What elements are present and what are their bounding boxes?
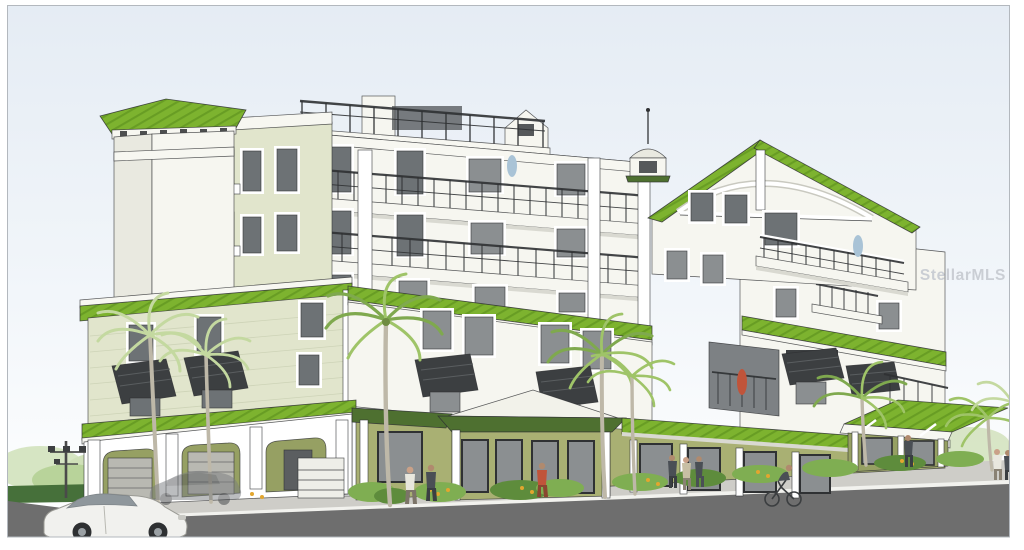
balcony-figure (853, 235, 863, 257)
recessed-balcony (709, 342, 779, 416)
balcony-column (588, 158, 600, 320)
elevator-tower (100, 99, 246, 318)
rendering-canvas: StellarMLS (0, 0, 1024, 550)
corner-pilaster (638, 162, 650, 334)
balcony-figure (737, 369, 747, 395)
balcony-figure (507, 155, 517, 177)
architectural-rendering: StellarMLS (0, 0, 1024, 550)
garage-door (108, 458, 152, 500)
watermark: StellarMLS (920, 267, 1006, 284)
entry-steps (298, 458, 344, 498)
balcony-column (358, 150, 372, 302)
